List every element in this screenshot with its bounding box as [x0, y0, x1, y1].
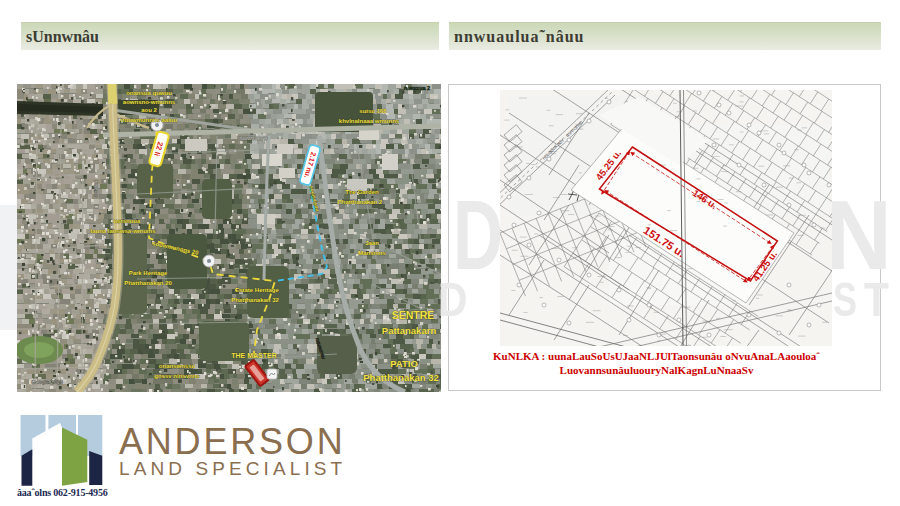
svg-text:suisu 168: suisu 168 [359, 108, 387, 114]
svg-text:khvlnalnaaa wmunns: khvlnalnaaa wmunns [339, 118, 400, 124]
svg-text:Estate Heritage: Estate Heritage [235, 287, 279, 293]
svg-text:n.wsxua 2: n.wsxua 2 [404, 85, 430, 91]
svg-text:Pattanakarn: Pattanakarn [382, 325, 437, 336]
svg-text:Jaan: Jaan [365, 240, 379, 246]
svg-text:aownsno-wmunns: aownsno-wmunns [123, 99, 176, 105]
svg-text:Phatthanakan 20: Phatthanakan 20 [124, 280, 172, 286]
svg-text:onanswnssu: onanswnssu [159, 363, 196, 369]
svg-text:onansua quwuu: onansua quwuu [126, 90, 172, 96]
svg-text:nuuwmunns: nuuwmunns [238, 135, 268, 141]
svg-text:Phatthanakan 2: Phatthanakan 2 [338, 199, 383, 205]
svg-text:THE MASTER: THE MASTER [231, 352, 277, 359]
svg-text:The Garden: The Garden [345, 189, 379, 195]
svg-text:PATIO: PATIO [390, 358, 418, 369]
svg-text:launa lanswsa-wmuins: launa lanswsa-wmuins [90, 228, 156, 234]
svg-text:gnssv nlnsvnns: gnssv nlnsvnns [154, 373, 200, 379]
svg-text:Phatthanakan 32: Phatthanakan 32 [363, 372, 439, 383]
svg-text:aou 2: aou 2 [141, 107, 157, 113]
svg-text:Google 2019: Google 2019 [31, 379, 63, 385]
svg-text:ustsnuua: ustsnuua [114, 218, 141, 224]
svg-text:Park Heritage: Park Heritage [129, 270, 168, 276]
svg-text:Mansions: Mansions [358, 250, 386, 256]
svg-text:nuuwmunnns aaluu: nuuwmunnns aaluu [121, 117, 178, 123]
svg-text:nvwiluu: nvwiluu [92, 180, 99, 197]
svg-text:SENTRE: SENTRE [392, 309, 435, 321]
svg-text:Phatthanakan 32: Phatthanakan 32 [231, 297, 279, 303]
